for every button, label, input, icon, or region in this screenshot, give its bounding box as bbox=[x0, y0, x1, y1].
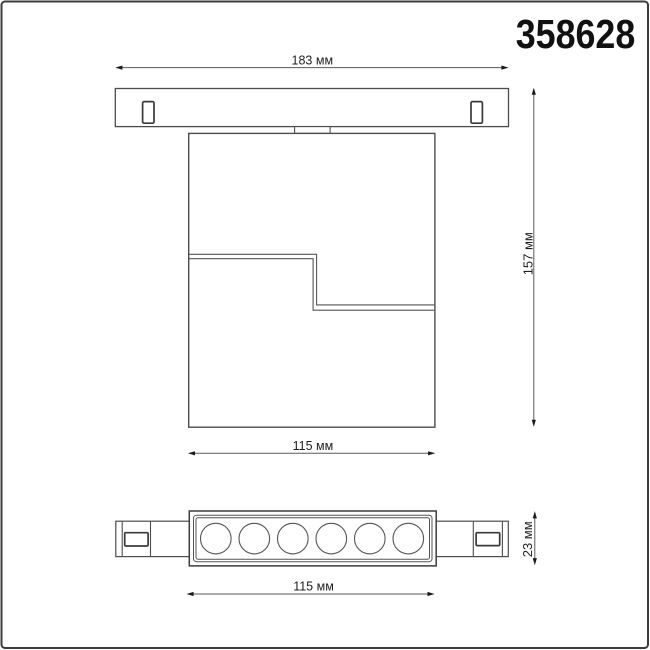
svg-text:23 мм: 23 мм bbox=[520, 521, 535, 557]
svg-text:358628: 358628 bbox=[516, 12, 636, 58]
svg-text:115 мм: 115 мм bbox=[293, 439, 334, 453]
svg-text:183 мм: 183 мм bbox=[292, 53, 334, 67]
svg-text:115 мм: 115 мм bbox=[293, 580, 334, 594]
svg-text:157 мм: 157 мм bbox=[521, 232, 536, 275]
